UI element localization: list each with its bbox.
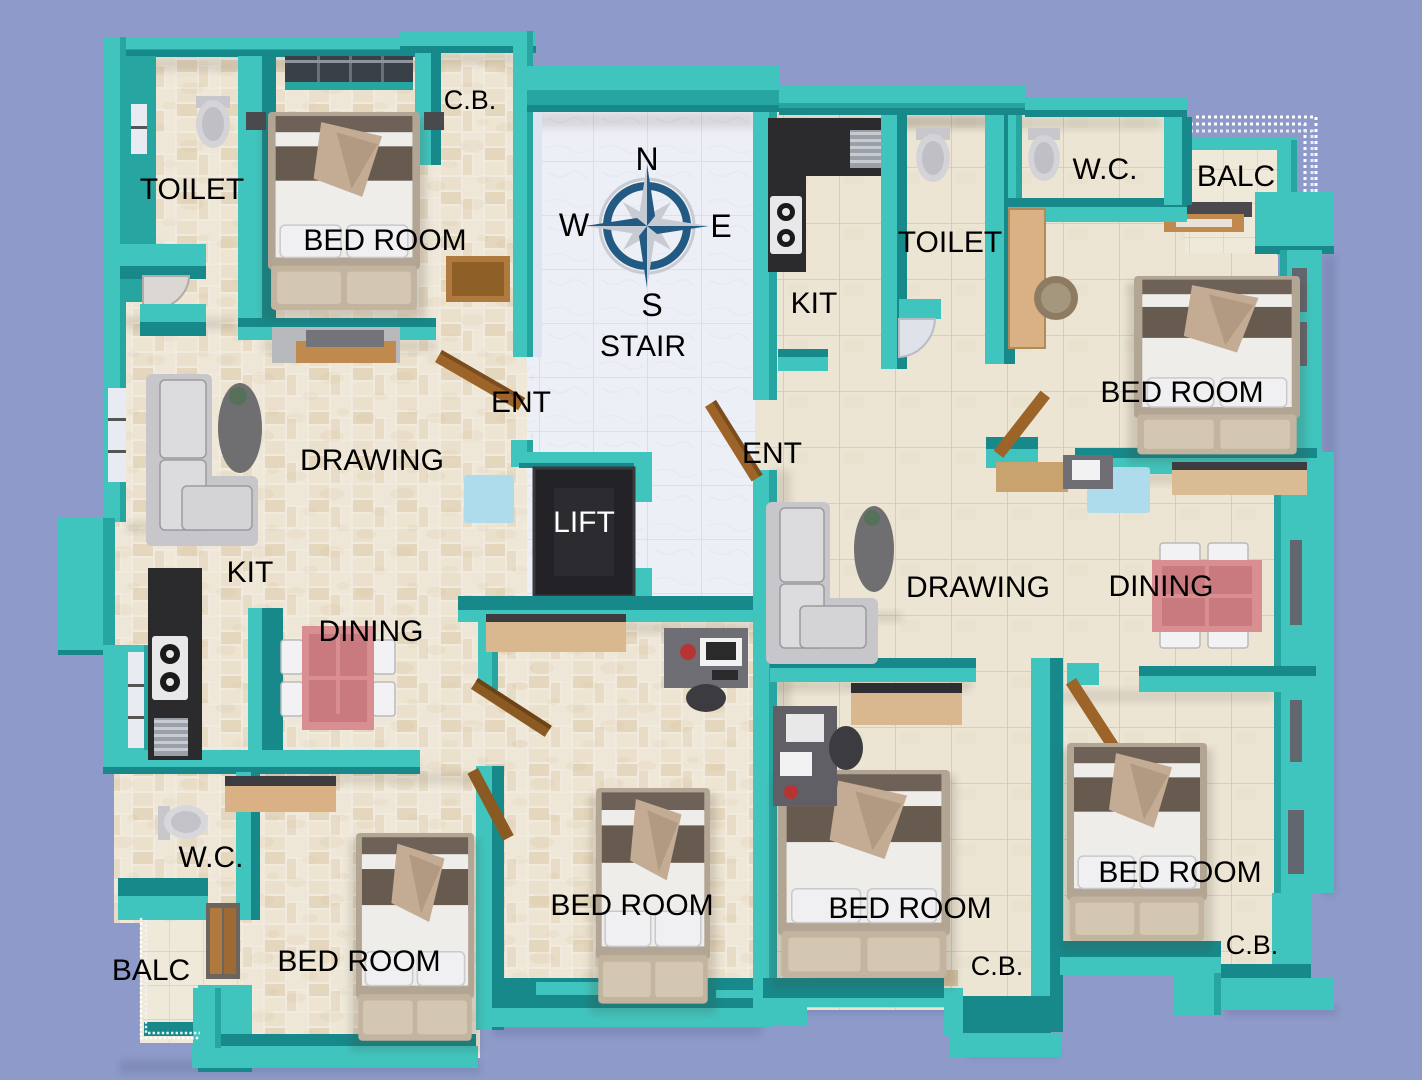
svg-text:TOILET: TOILET bbox=[140, 173, 244, 206]
svg-text:LIFT: LIFT bbox=[553, 506, 615, 539]
svg-text:STAIR: STAIR bbox=[600, 330, 686, 363]
svg-text:KIT: KIT bbox=[227, 556, 274, 589]
svg-text:C.B.: C.B. bbox=[971, 951, 1024, 981]
svg-text:BED ROOM: BED ROOM bbox=[550, 889, 713, 922]
svg-text:BALC: BALC bbox=[112, 954, 190, 987]
svg-text:DRAWING: DRAWING bbox=[300, 444, 444, 477]
svg-text:E: E bbox=[710, 208, 731, 244]
svg-text:BED ROOM: BED ROOM bbox=[277, 945, 440, 978]
svg-text:TOILET: TOILET bbox=[898, 226, 1002, 259]
svg-text:DRAWING: DRAWING bbox=[906, 571, 1050, 604]
svg-text:C.B.: C.B. bbox=[1226, 930, 1279, 960]
svg-text:BED ROOM: BED ROOM bbox=[303, 224, 466, 257]
svg-text:BED ROOM: BED ROOM bbox=[1098, 856, 1261, 889]
svg-text:ENT: ENT bbox=[742, 437, 802, 470]
svg-text:BED ROOM: BED ROOM bbox=[828, 892, 991, 925]
svg-text:DINING: DINING bbox=[1109, 570, 1214, 603]
svg-text:ENT: ENT bbox=[491, 386, 551, 419]
svg-text:N: N bbox=[635, 141, 658, 177]
svg-text:S: S bbox=[641, 287, 662, 323]
svg-text:C.B.: C.B. bbox=[444, 85, 497, 115]
svg-text:KIT: KIT bbox=[791, 287, 838, 320]
svg-text:W: W bbox=[559, 207, 590, 243]
svg-text:DINING: DINING bbox=[319, 615, 424, 648]
svg-text:W.C.: W.C. bbox=[179, 841, 244, 874]
svg-text:BED ROOM: BED ROOM bbox=[1100, 376, 1263, 409]
svg-text:W.C.: W.C. bbox=[1073, 153, 1138, 186]
svg-text:BALC: BALC bbox=[1197, 160, 1275, 193]
